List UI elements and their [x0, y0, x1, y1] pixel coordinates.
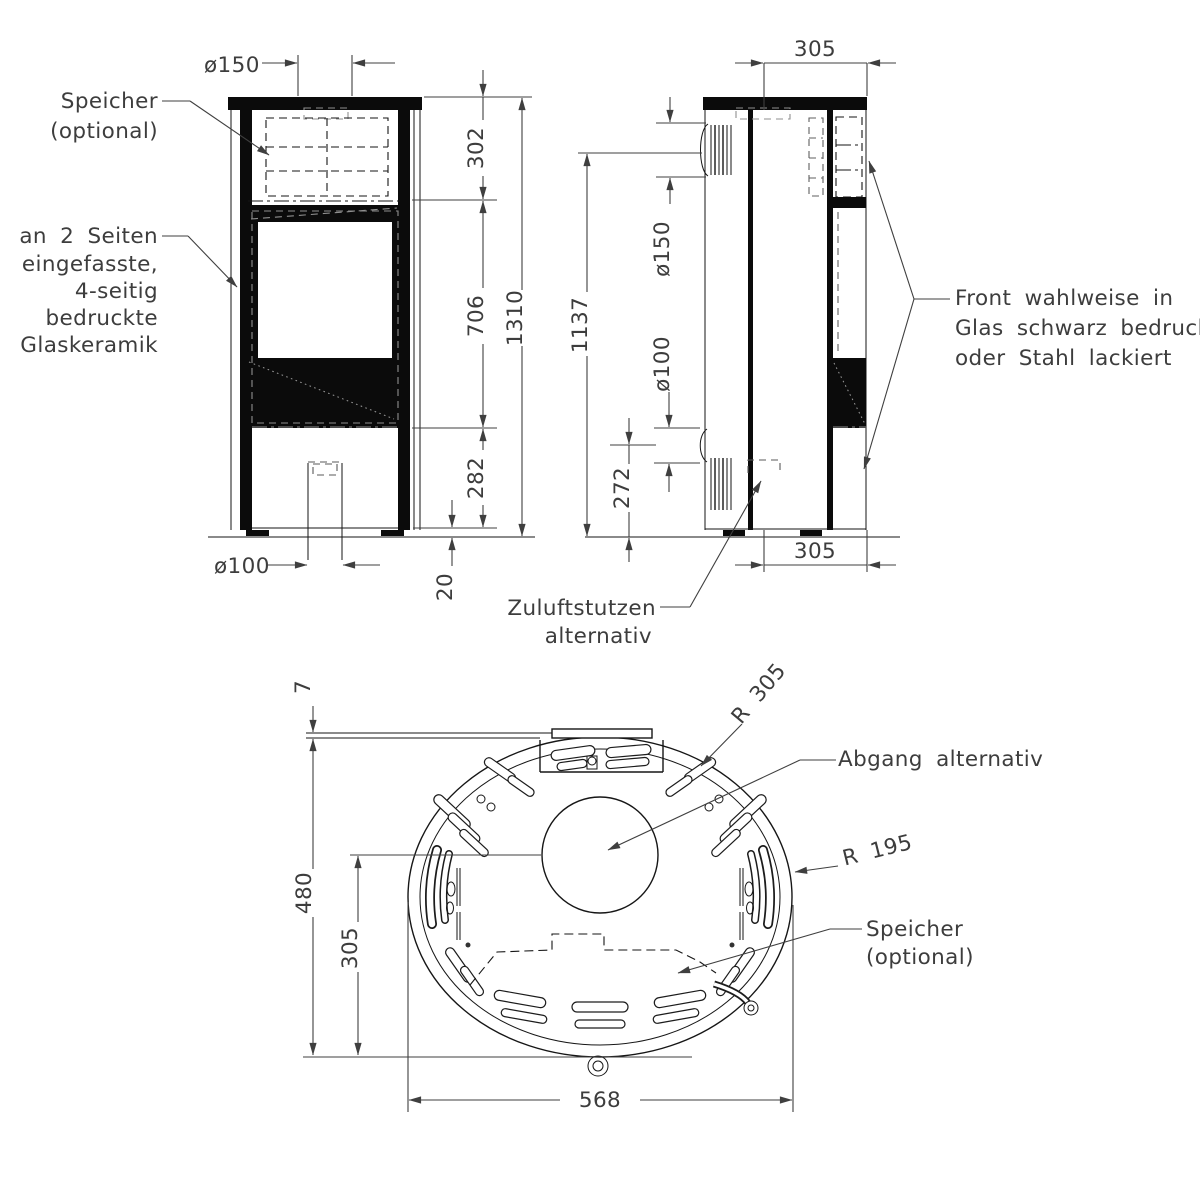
label-zuluft-2: alternativ	[545, 624, 652, 649]
label-speicher-bottom-2: (optional)	[866, 945, 974, 970]
front-speicher-outline	[266, 108, 388, 196]
label-front-finish-3: oder Stahl lackiert	[955, 346, 1172, 371]
label-glass-5: Glaskeramik	[20, 333, 158, 358]
label-abgang: Abgang alternativ	[838, 747, 1043, 772]
dim-side-depth-bottom: 305	[794, 539, 836, 564]
dim-total-height: 1310	[503, 290, 528, 346]
dim-side-depth-top: 305	[794, 37, 836, 62]
side-dimensions: 305 ø150 ø100 1137 272	[568, 37, 896, 572]
top-labels: Abgang alternativ Speicher (optional)	[608, 747, 1043, 973]
label-zuluft-1: Zuluftstutzen	[507, 596, 656, 621]
label-front-finish-2: Glas schwarz bedruckt	[955, 316, 1200, 341]
label-glass-3: 4-seitig	[75, 279, 158, 304]
dim-feet-height: 20	[433, 573, 458, 601]
dim-intake-center-height: 272	[610, 467, 635, 509]
dim-radius-back: R 305	[727, 659, 792, 729]
dim-firebox-section: 706	[464, 295, 489, 337]
dim-width: 568	[579, 1088, 621, 1113]
top-slots-left	[430, 756, 547, 1024]
dim-intake-diameter: ø100	[214, 554, 270, 579]
dim-side-flue-diameter: ø150	[650, 221, 675, 277]
side-view: 305 ø150 ø100 1137 272	[507, 37, 1200, 649]
label-glass-4: bedruckte	[45, 306, 158, 331]
front-labels: Speicher (optional) an 2 Seiten eingefas…	[19, 89, 269, 358]
label-speicher-top-1: Speicher	[61, 89, 158, 114]
label-glass-1: an 2 Seiten	[19, 224, 158, 249]
side-right-strip	[809, 117, 866, 428]
bottom-center-slot	[572, 1002, 628, 1012]
label-speicher-top-2: (optional)	[50, 119, 158, 144]
top-speicher-outline	[470, 934, 716, 985]
front-top-cap	[228, 97, 422, 110]
glass-window	[258, 222, 392, 358]
front-view: ø150 302 706 282 1310 20 ø100	[19, 53, 535, 601]
front-firebox	[246, 205, 398, 428]
dim-base-section: 282	[464, 457, 489, 499]
technical-drawing: ø150 302 706 282 1310 20 ø100	[0, 0, 1200, 1179]
top-flue-spine	[306, 729, 663, 772]
label-speicher-bottom-1: Speicher	[866, 917, 963, 942]
label-front-finish-1: Front wahlweise in	[955, 286, 1173, 311]
dim-plate-offset: 7	[291, 680, 316, 694]
flue-outlet-circle	[542, 797, 658, 913]
dim-side-intake-diameter: ø100	[650, 336, 675, 392]
dim-depth: 480	[292, 872, 317, 914]
top-view: 7 480 305 568 R 305 R 195 Abgang alterna…	[291, 659, 1043, 1113]
label-glass-2: eingefasste,	[22, 252, 158, 277]
dim-radius-side: R 195	[840, 830, 915, 871]
dim-flue-center-height: 1137	[568, 297, 593, 353]
dim-upper-section: 302	[464, 127, 489, 169]
dim-flue-center-offset: 305	[338, 927, 363, 969]
dim-flue-diameter: ø150	[204, 53, 260, 78]
